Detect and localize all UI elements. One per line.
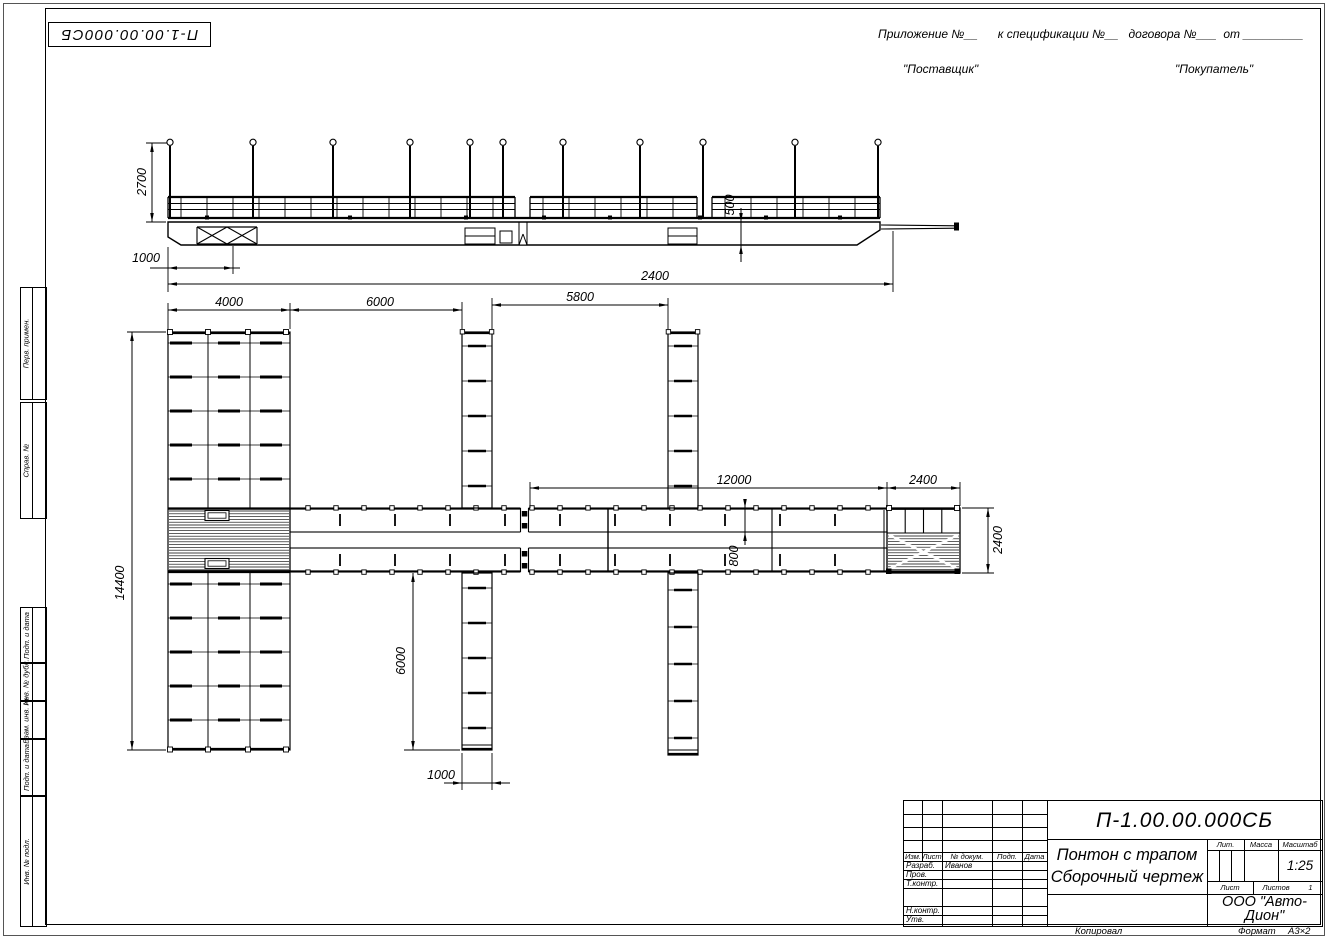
tb-line (1231, 850, 1232, 881)
tb-company: ООО "Авто-Дион" (1207, 894, 1322, 924)
dim-side-length: 2400 (640, 269, 669, 283)
tb-lit-label: Лит. (1207, 839, 1244, 850)
dim-plan-1000-bottom: 1000 (427, 768, 455, 782)
footer-format-label: Формат (1238, 926, 1276, 937)
dim-plan-2400-top: 2400 (908, 473, 937, 487)
tb-line (992, 801, 993, 926)
tb-col-data: Дата (1022, 852, 1047, 861)
tb-col-doc: № докум. (942, 852, 992, 861)
tb-sheets-value: 1 (1299, 881, 1322, 894)
dim-plan-14400: 14400 (113, 566, 127, 601)
tb-sheet-label: Лист (1207, 881, 1253, 894)
tb-col-list: Лист (922, 852, 942, 861)
drawing-canvas: 2700 1000 500 2400 4000 6000 5800 12000 … (0, 0, 1328, 939)
dimension-labels: 2700 1000 500 2400 4000 6000 5800 12000 … (113, 168, 1005, 782)
tb-scale-label: Масштаб (1278, 839, 1322, 850)
dim-plan-800: 800 (727, 546, 741, 567)
tb-line (904, 840, 1047, 841)
tb-col-podp: Подп. (992, 852, 1022, 861)
tb-row-tkontr: Т.контр. (906, 880, 938, 888)
tb-col-izm: Изм. (904, 852, 922, 861)
dim-side-height: 2700 (135, 168, 149, 197)
tb-mass-label: Масса (1244, 839, 1278, 850)
tb-razrab-name: Иванов (945, 862, 972, 870)
side-view (167, 139, 959, 245)
tb-row-razrab: Разраб. (906, 862, 935, 870)
dim-side-draft: 500 (723, 195, 737, 216)
tb-sheets-label: Листов (1253, 881, 1299, 894)
tb-product-title: Понтон с трапом (1047, 843, 1207, 867)
tb-line (942, 801, 943, 926)
tb-scale-value: 1:25 (1278, 850, 1322, 881)
dim-plan-4000: 4000 (215, 295, 243, 309)
footer-copied: Копировал (1075, 926, 1122, 937)
tb-row-nkontr: Н.контр. (906, 907, 940, 915)
dim-plan-6000-top: 6000 (366, 295, 394, 309)
dim-plan-2400-right: 2400 (991, 526, 1005, 555)
dim-side-offset: 1000 (132, 251, 160, 265)
tb-line (1022, 801, 1023, 926)
tb-doc-number: П-1.00.00.000СБ (1047, 801, 1322, 839)
tb-row-utv: Утв. (906, 916, 924, 924)
tb-line (1219, 850, 1220, 881)
tb-line (904, 814, 1047, 815)
title-block: Изм. Лист № докум. Подп. Дата Разраб. Ив… (903, 800, 1323, 927)
tb-row-prov: Пров. (906, 871, 927, 879)
dim-plan-6000-bottom: 6000 (394, 647, 408, 675)
plan-view (168, 330, 961, 756)
tb-line (904, 827, 1047, 828)
dim-plan-5800: 5800 (566, 290, 594, 304)
tb-line (904, 888, 1047, 889)
drawing-sheet: П-1.00.00.000СБ Приложение №__ к специфи… (0, 0, 1328, 939)
dim-plan-12000: 12000 (717, 473, 752, 487)
tb-doc-type: Сборочный чертеж (1047, 865, 1207, 889)
footer-format-value: А3×2 (1288, 926, 1310, 937)
tb-line (904, 915, 1047, 916)
